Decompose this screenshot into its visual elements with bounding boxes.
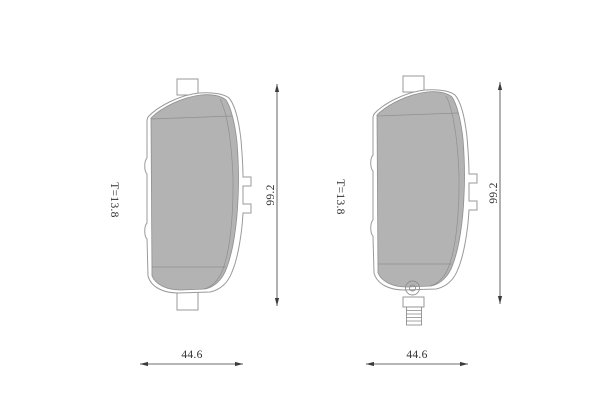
height-label-left: 99.2 <box>265 184 277 205</box>
arrowhead-down-icon <box>498 296 502 304</box>
arrowhead-left-icon <box>140 362 148 366</box>
arrowhead-up-icon <box>275 84 279 92</box>
arrowhead-right-icon <box>460 362 468 366</box>
wear-sensor-collar <box>403 297 424 307</box>
thickness-label-left: T=13.8 <box>108 182 120 217</box>
arrowhead-up-icon <box>498 82 502 90</box>
brake-pad-technical-drawing: T=13.8 T=13.8 99.2 99.2 44.6 44.6 <box>0 0 600 400</box>
brake-pad-view-right <box>371 76 477 325</box>
arrowhead-left-icon <box>366 362 374 366</box>
width-label-left: 44.6 <box>181 349 202 361</box>
height-label-right: 99.2 <box>488 182 500 203</box>
mounting-tab-bottom <box>177 292 198 310</box>
wear-sensor-stem <box>407 307 422 325</box>
technical-drawing-canvas <box>0 0 600 400</box>
brake-pad-view-left <box>145 79 251 310</box>
mounting-tab-top <box>403 76 424 92</box>
width-label-right: 44.6 <box>406 349 427 361</box>
arrowhead-down-icon <box>275 298 279 306</box>
width-dimension-right <box>366 362 468 366</box>
arrowhead-right-icon <box>235 362 243 366</box>
thickness-label-right: T=13.8 <box>334 179 346 214</box>
width-dimension-left <box>140 362 243 366</box>
mounting-tab-top <box>177 79 198 95</box>
